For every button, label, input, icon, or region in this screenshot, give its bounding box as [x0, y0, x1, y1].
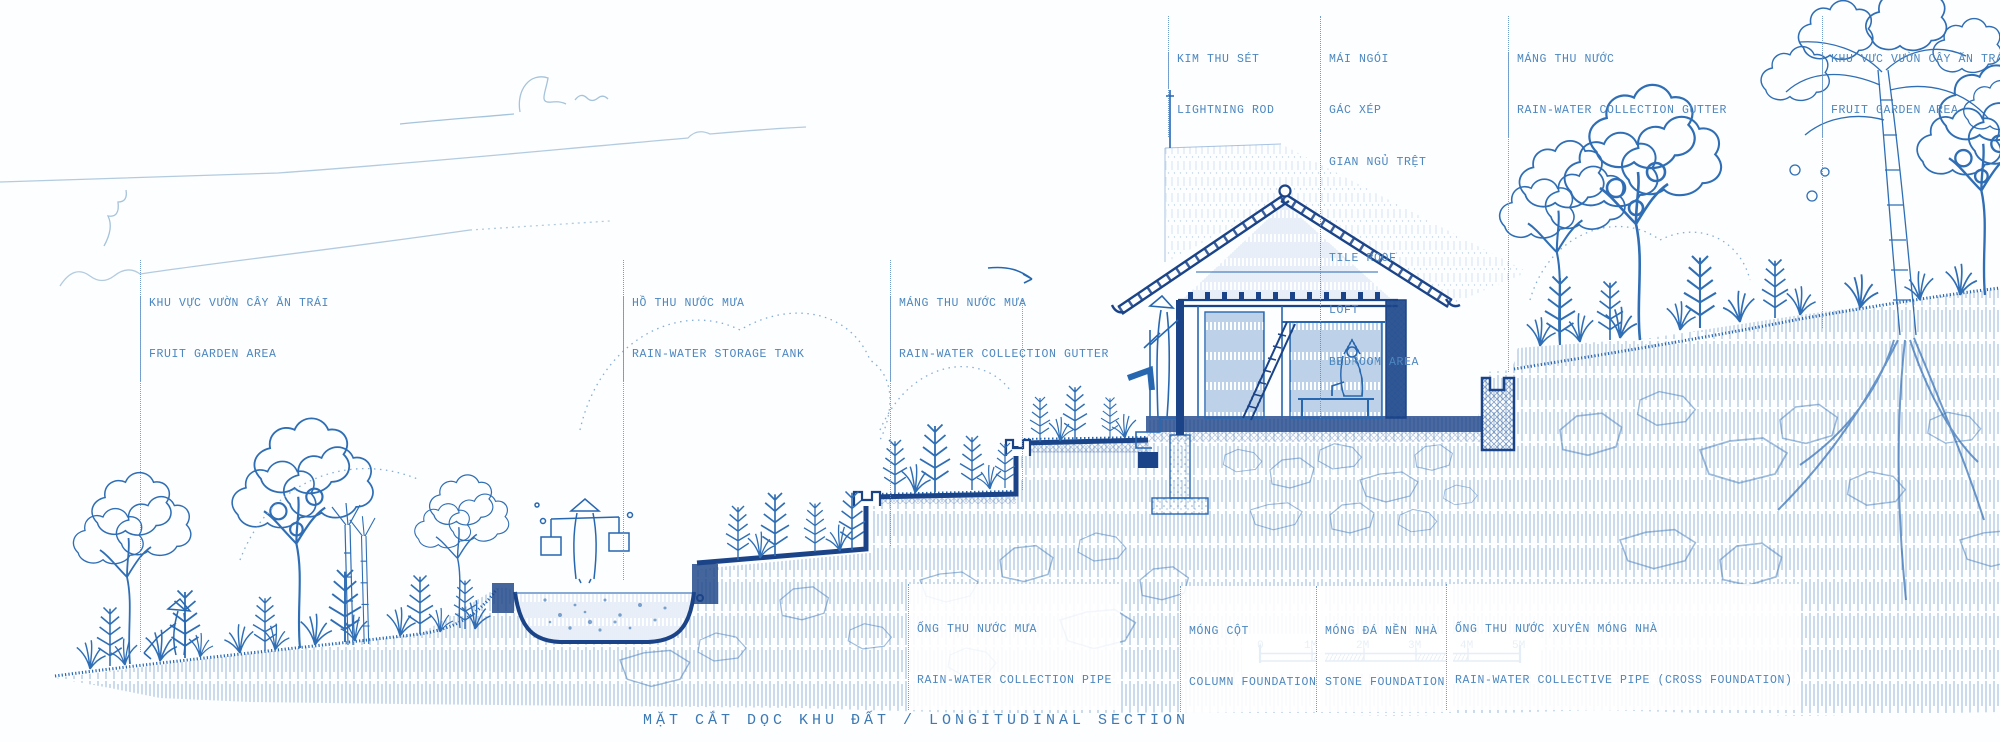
label-vi: GÁC XÉP: [1329, 102, 1427, 119]
label-collection-pipe: ỐNG THU NƯỚC MƯA RAIN-WATER COLLECTION P…: [908, 584, 1120, 710]
label-en: FRUIT GARDEN AREA: [1831, 102, 2000, 119]
label-vi: MÓNG CỘT: [1189, 623, 1317, 640]
sky-contour-lines: [0, 77, 806, 286]
label-fruit-garden-right: KHU VỰC VƯỜN CÂY ĂN TRÁI FRUIT GARDEN AR…: [1822, 16, 2000, 137]
label-en: FRUIT GARDEN AREA: [149, 346, 329, 363]
retaining-wall: [1482, 378, 1514, 450]
label-en: RAIN-WATER COLLECTIVE PIPE (CROSS FOUNDA…: [1455, 672, 1793, 689]
label-vi: MÁNG THU NƯỚC: [1517, 51, 1727, 68]
label-gutter-top: MÁNG THU NƯỚC RAIN-WATER COLLECTION GUTT…: [1508, 16, 1727, 137]
label-en: RAIN-WATER COLLECTION GUTTER: [1517, 102, 1727, 119]
label-en: COLUMN FOUNDATION: [1189, 674, 1317, 691]
label-en: STONE FOUNDATION: [1325, 674, 1445, 691]
label-storage-tank: HỒ THU NƯỚC MƯA RAIN-WATER STORAGE TANK: [623, 260, 805, 381]
label-en: BEDROOM AREA: [1329, 354, 1427, 371]
label-vi: MÓNG ĐÁ NỀN NHÀ: [1325, 623, 1445, 640]
left-cut-post: [1176, 300, 1184, 418]
label-vi: KIM THU SÉT: [1177, 51, 1275, 68]
label-en: LIGHTNING ROD: [1177, 102, 1275, 119]
label-vi: HỒ THU NƯỚC MƯA: [632, 295, 805, 312]
label-gutter-mid: MÁNG THU NƯỚC MƯA RAIN-WATER COLLECTION …: [890, 260, 1109, 381]
label-vi: ỐNG THU NƯỚC XUYÊN MÓNG NHÀ: [1455, 621, 1793, 638]
label-vi: MÁNG THU NƯỚC MƯA: [899, 295, 1109, 312]
label-en: RAIN-WATER STORAGE TANK: [632, 346, 805, 363]
label-en: LOFT: [1329, 302, 1427, 319]
label-vi: ỐNG THU NƯỚC MƯA: [917, 621, 1112, 638]
drawing-title: MẶT CẮT DỌC KHU ĐẤT / LONGITUDINAL SECTI…: [643, 712, 1189, 729]
house-foundation: [1146, 416, 1482, 442]
architectural-drawing: 0 1M 2M 3M 4M 5M KHU VỰC VƯỜN CÂY ĂN TRÁ…: [0, 0, 2000, 742]
label-cross-pipe: ỐNG THU NƯỚC XUYÊN MÓNG NHÀ RAIN-WATER C…: [1446, 584, 1801, 710]
label-roof-loft-bedroom: MÁI NGÓI GÁC XÉP GIAN NGỦ TRỆT TILE ROOF…: [1320, 16, 1427, 388]
figure-with-buckets: [535, 499, 633, 583]
label-vi: KHU VỰC VƯỜN CÂY ĂN TRÁI: [149, 295, 329, 312]
label-vi: KHU VỰC VƯỜN CÂY ĂN TRÁI: [1831, 51, 2000, 68]
label-fruit-garden-left: KHU VỰC VƯỜN CÂY ĂN TRÁI FRUIT GARDEN AR…: [140, 260, 329, 381]
label-column-foundation: MÓNG CỘT COLUMN FOUNDATION: [1180, 586, 1325, 712]
label-lightning-rod: KIM THU SÉT LIGHTNING ROD: [1168, 16, 1275, 137]
label-stone-foundation: MÓNG ĐÁ NỀN NHÀ STONE FOUNDATION: [1316, 586, 1453, 712]
label-en: RAIN-WATER COLLECTION GUTTER: [899, 346, 1109, 363]
label-vi: GIAN NGỦ TRỆT: [1329, 154, 1427, 171]
label-en: RAIN-WATER COLLECTION PIPE: [917, 672, 1112, 689]
label-vi: MÁI NGÓI: [1329, 51, 1427, 68]
label-en: TILE ROOF: [1329, 250, 1427, 267]
